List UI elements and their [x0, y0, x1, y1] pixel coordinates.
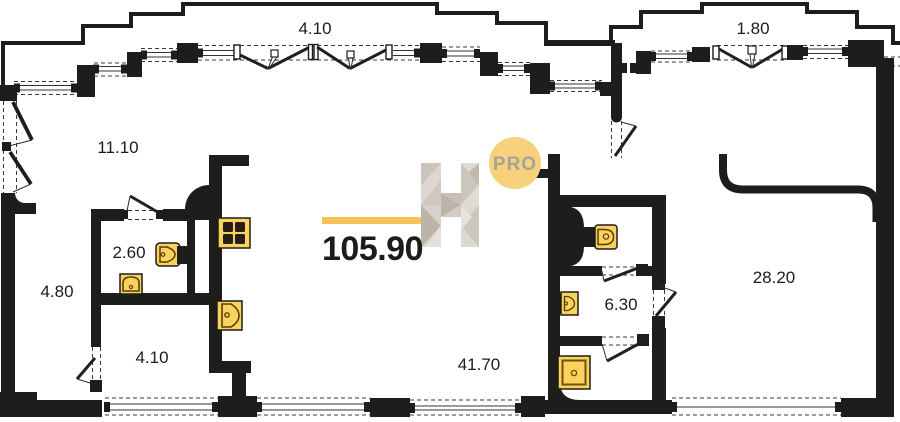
svg-text:1.80: 1.80	[736, 19, 769, 38]
svg-text:4.80: 4.80	[40, 282, 73, 301]
svg-text:6.30: 6.30	[604, 295, 637, 314]
svg-text:4.10: 4.10	[298, 19, 331, 38]
svg-text:2.60: 2.60	[112, 243, 145, 262]
svg-text:41.70: 41.70	[458, 355, 501, 374]
svg-text:PRO: PRO	[493, 154, 537, 175]
svg-text:4.10: 4.10	[135, 348, 168, 367]
svg-text:105.90: 105.90	[322, 230, 423, 268]
svg-text:28.20: 28.20	[753, 268, 796, 287]
svg-text:11.10: 11.10	[97, 138, 138, 157]
